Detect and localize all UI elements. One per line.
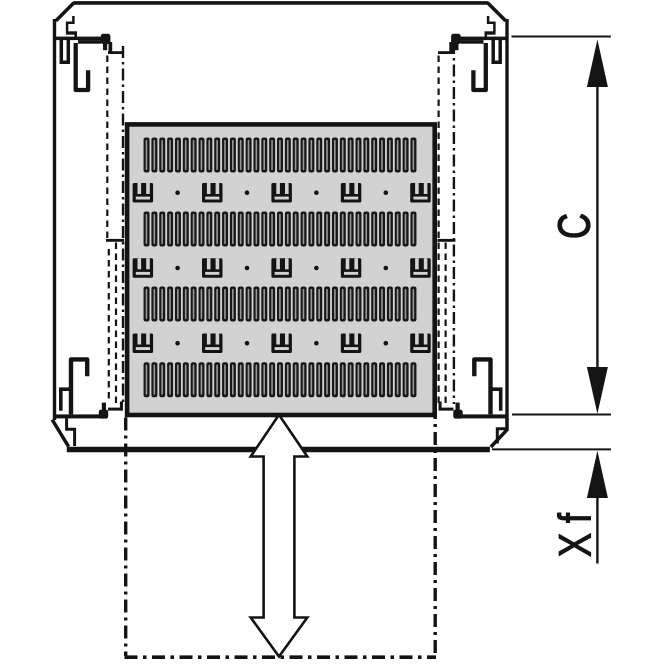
svg-text:X f: X f (550, 512, 601, 557)
svg-text:C: C (549, 213, 600, 239)
